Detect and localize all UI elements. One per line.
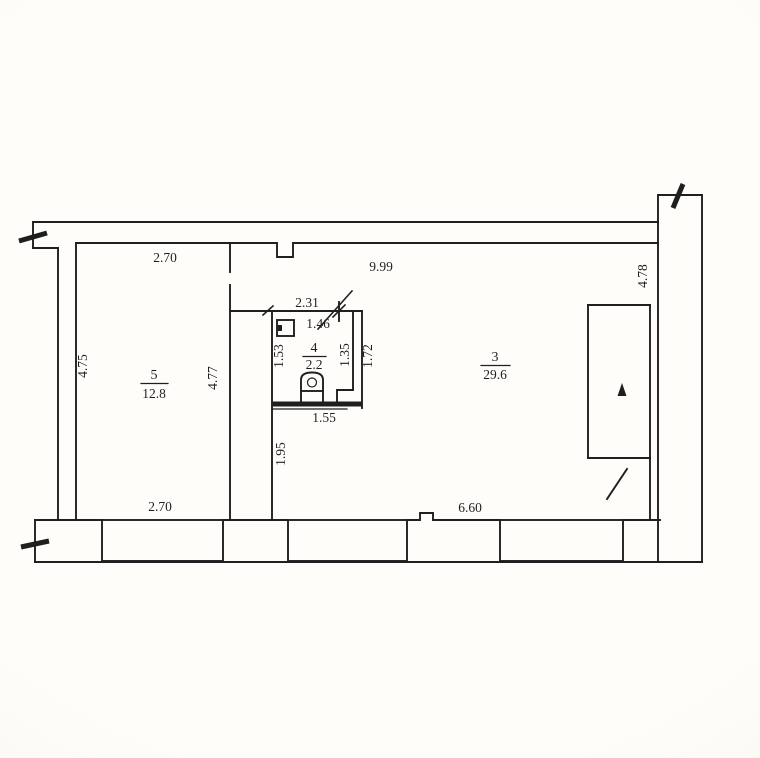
partition-walls [230,243,272,520]
stair-winder-line [589,458,650,496]
toilet-bowl-circle [308,378,317,387]
room3-area: 29.6 [483,367,507,382]
break-tick-top-right [673,184,683,208]
dim-bath-right-outer: 1.72 [360,344,375,368]
sink-faucet-mark [278,325,282,331]
stair-winder-line [589,458,643,519]
window-2 [288,520,407,561]
bath-duct-notch [337,390,353,403]
dim-room5-left: 4.75 [75,354,90,378]
room4-number: 4 [311,341,318,356]
wall-bottom-inner-pier-notch [407,513,500,520]
window-frame [102,520,223,561]
room5-area: 12.8 [142,386,166,401]
room4-area: 2.2 [306,357,323,372]
room3-number: 3 [492,350,499,365]
dim-bath-overall: 2.31 [295,295,319,310]
room-labels: 5 12.8 4 2.2 3 29.6 [141,341,510,401]
dim-room3-bottom: 6.60 [458,500,482,515]
floor-plan-scan: 2.70 9.99 4.78 2.31 1.46 1.53 1.35 1.72 … [0,0,760,758]
window-frame [500,520,623,561]
break-tick-bottom-left [21,541,49,547]
dim-room5-bottom: 2.70 [148,499,172,514]
dim-room3-top: 9.99 [369,259,393,274]
stair-direction-arrow-head [618,383,627,396]
dim-bath-left: 1.53 [271,344,286,368]
floor-plan-drawing: 2.70 9.99 4.78 2.31 1.46 1.53 1.35 1.72 … [0,0,760,758]
toilet-bowl [301,373,323,392]
stair-cut-tick [607,469,627,499]
window-frame [288,520,407,561]
dim-room5-top: 2.70 [153,250,177,265]
stair-winder-line [589,458,616,519]
dim-bath-right-inner: 1.35 [337,343,352,367]
dim-bath-inner: 1.46 [306,316,330,331]
stair-winder-line [589,458,597,519]
dim-bath-bottom: 1.55 [312,410,336,425]
window-3 [500,520,623,561]
dim-below-bath-wall: 1.95 [273,442,288,466]
toilet-tank [301,391,323,403]
room5-number: 5 [151,368,158,383]
dim-room5-right-wall: 4.77 [205,366,220,390]
window-1 [102,520,223,561]
dim-stairwell: 4.78 [635,264,650,288]
staircase [588,305,650,520]
exterior-walls [19,184,702,562]
stair-winder-line [589,458,650,474]
